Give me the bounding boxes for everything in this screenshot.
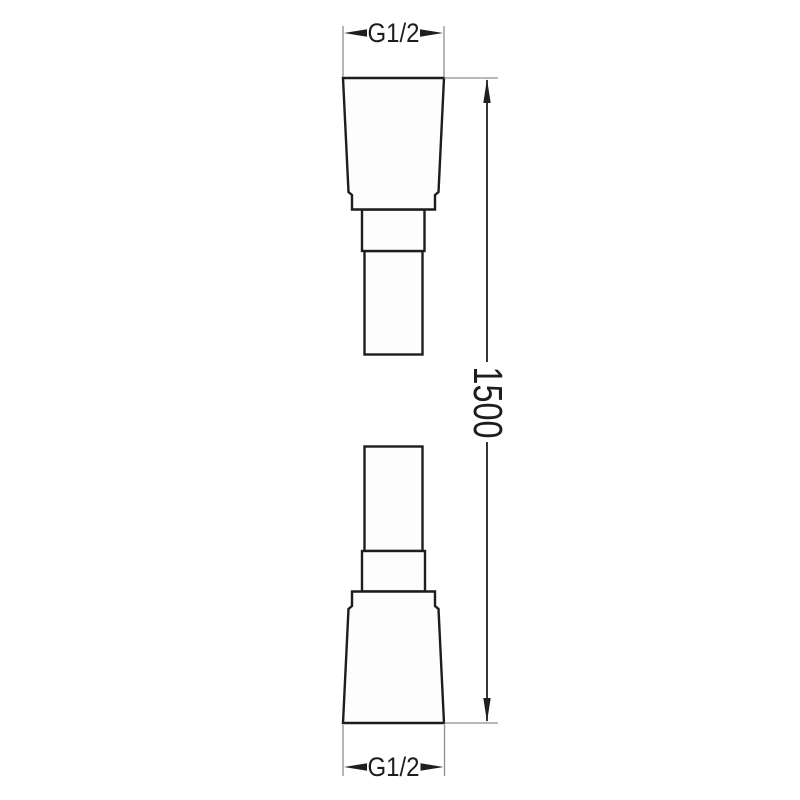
length-dimension: 1500 [444, 78, 511, 723]
top-thread-label: G1/2 [368, 18, 420, 48]
upper-conical-nut [343, 78, 444, 210]
lower-collar [362, 551, 425, 592]
upper-collar [362, 210, 425, 252]
shower-hose-dimension-drawing: G1/2 G1/2 1500 [0, 0, 800, 800]
bottom-dim-arrow-left-icon [344, 763, 367, 771]
page: { "drawing": { "labels": { "top_thread":… [0, 0, 800, 800]
lower-conical-nut [343, 592, 444, 724]
top-thread-dimension: G1/2 [343, 18, 444, 77]
bottom-thread-label: G1/2 [368, 752, 420, 782]
top-dim-arrow-right-icon [420, 29, 443, 37]
bottom-dim-arrow-right-icon [421, 763, 444, 771]
hose-upper-end [343, 78, 444, 355]
upper-hose-tube [365, 251, 423, 355]
top-dim-arrow-left-icon [344, 29, 367, 37]
technical-drawing-canvas: G1/2 G1/2 1500 [0, 0, 800, 800]
lower-hose-tube [365, 447, 423, 552]
hose-length-label: 1500 [465, 367, 511, 439]
hose-lower-end [343, 447, 444, 724]
length-arrow-up-icon [483, 79, 490, 103]
length-arrow-down-icon [483, 698, 490, 722]
bottom-thread-dimension: G1/2 [343, 725, 445, 782]
